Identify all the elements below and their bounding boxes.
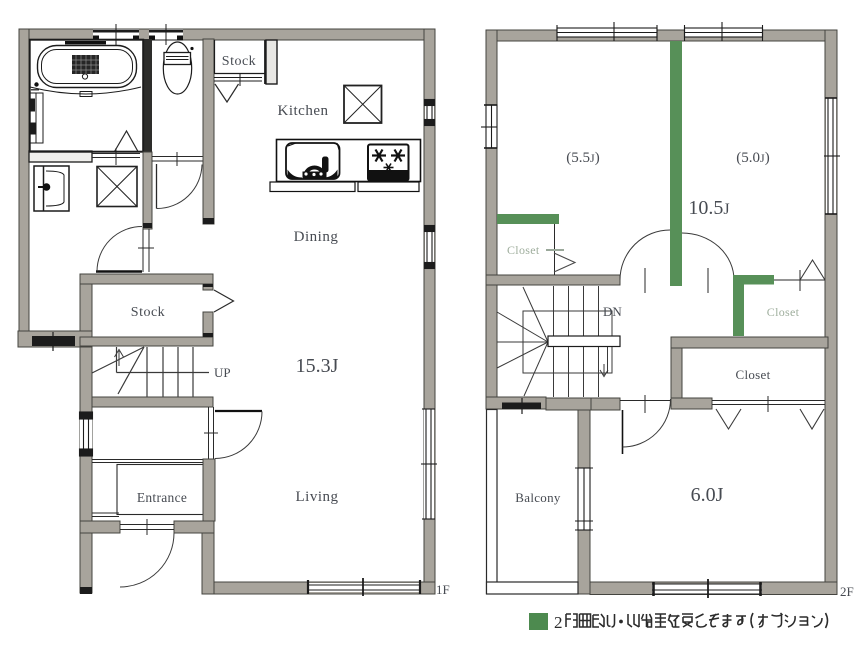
svg-text:Closet: Closet bbox=[507, 243, 540, 257]
svg-text:(5.5J): (5.5J) bbox=[566, 150, 599, 166]
svg-text:15.3J: 15.3J bbox=[296, 355, 339, 377]
svg-text:10.5J: 10.5J bbox=[688, 197, 729, 219]
svg-text:Kitchen: Kitchen bbox=[278, 103, 329, 119]
svg-text:6.0J: 6.0J bbox=[691, 484, 724, 506]
svg-text:Dining: Dining bbox=[294, 229, 339, 245]
svg-text:Entrance: Entrance bbox=[137, 490, 187, 505]
svg-text:Living: Living bbox=[296, 489, 339, 505]
svg-text:Closet: Closet bbox=[767, 305, 800, 319]
svg-text:UP: UP bbox=[214, 365, 231, 380]
svg-text:Stock: Stock bbox=[131, 305, 165, 320]
svg-text:1F: 1F bbox=[436, 582, 450, 597]
svg-text:2: 2 bbox=[554, 613, 563, 632]
svg-text:Closet: Closet bbox=[735, 367, 770, 382]
svg-text:Balcony: Balcony bbox=[515, 490, 561, 505]
svg-text:Stock: Stock bbox=[222, 54, 256, 69]
svg-text:2F: 2F bbox=[840, 584, 854, 599]
svg-text:(5.0J): (5.0J) bbox=[736, 150, 769, 166]
svg-text:DN: DN bbox=[603, 304, 622, 319]
